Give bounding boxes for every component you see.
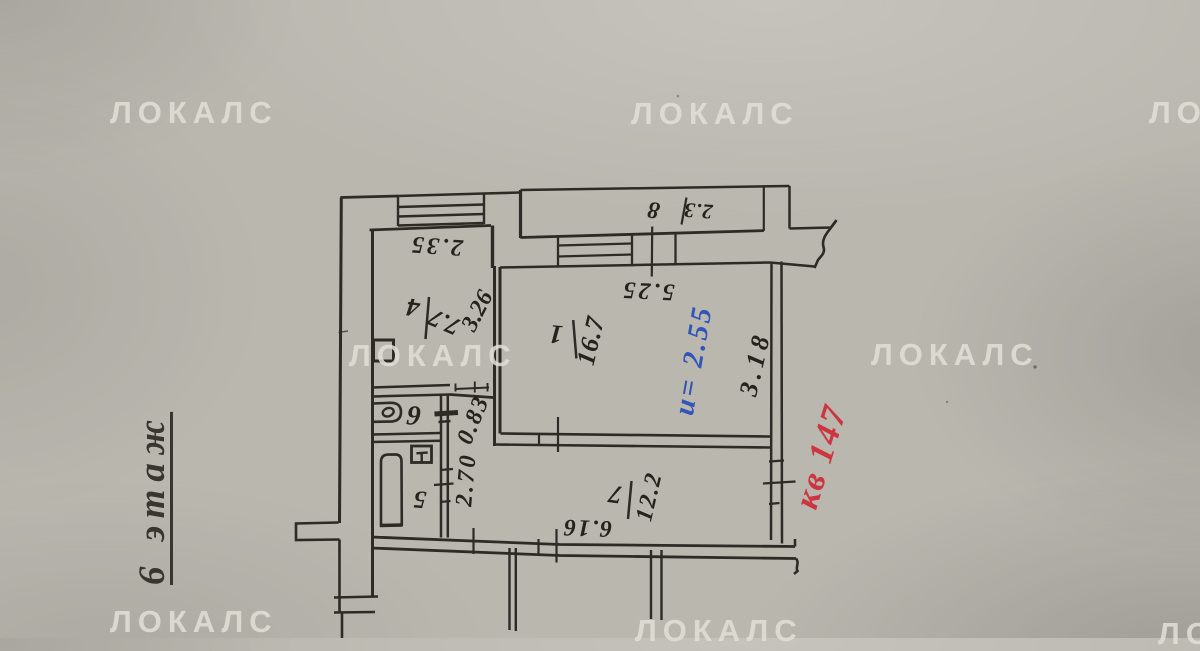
svg-text:4: 4 (405, 292, 423, 323)
svg-text:2.3: 2.3 (683, 198, 715, 224)
svg-text:кв 147: кв 147 (786, 400, 854, 513)
svg-text:2.35: 2.35 (408, 231, 465, 261)
svg-text:3.18: 3.18 (733, 328, 776, 399)
svg-text:8: 8 (646, 196, 662, 223)
svg-text:5.25: 5.25 (620, 276, 675, 305)
svg-text:6: 6 (406, 399, 423, 431)
svg-text:0.83: 0.83 (452, 392, 495, 448)
svg-text:7: 7 (606, 479, 624, 510)
svg-text:6.16: 6.16 (562, 514, 613, 542)
svg-text:и= 2.55: и= 2.55 (668, 302, 719, 418)
svg-text:2.70: 2.70 (451, 451, 482, 508)
svg-text:5: 5 (413, 485, 428, 513)
svg-text:16.7: 16.7 (571, 313, 610, 368)
svg-text:3.26: 3.26 (456, 286, 499, 336)
svg-text:1: 1 (548, 319, 564, 350)
svg-text:12.2: 12.2 (631, 469, 668, 524)
